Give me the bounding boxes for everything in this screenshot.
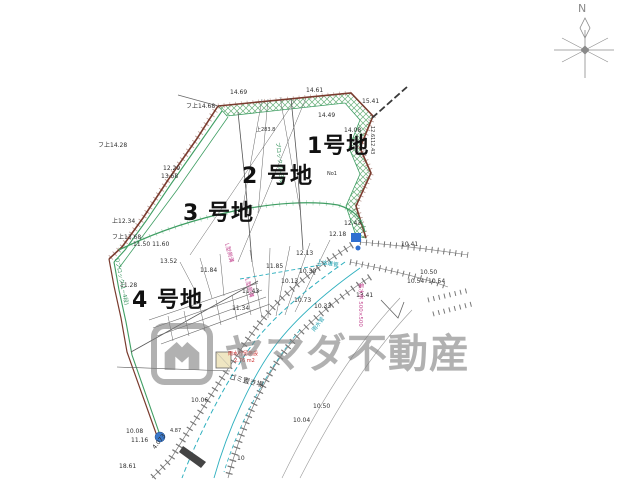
survey-annotation: 13.52 [160, 259, 177, 265]
survey-annotation: 11.85 [266, 264, 283, 270]
survey-annotation: 14.49 [318, 113, 335, 119]
survey-annotation: 15.41 [362, 99, 379, 105]
survey-annotation: 12.13 [296, 251, 313, 257]
survey-annotation: 10.33 [314, 304, 331, 310]
compass-north-label: N [578, 2, 586, 15]
survey-annotation: 10 [237, 456, 245, 462]
survey-annotation: 上283.8 [256, 128, 275, 133]
small-valve-marker [356, 246, 361, 251]
catch-basin-marker [351, 233, 361, 242]
retaining-wall-wedge [179, 446, 206, 468]
lot-label: 3 号地 [183, 203, 254, 225]
survey-annotation: 10.04 [293, 418, 310, 424]
survey-annotation: 11.34 [232, 306, 249, 312]
survey-annotation: 13.68 [161, 174, 178, 180]
compass-rose [554, 18, 614, 78]
survey-annotation: 10.50 [313, 404, 330, 410]
survey-annotation: 10.06 [191, 398, 208, 404]
survey-annotation: 10.41 [401, 242, 418, 248]
survey-annotation: フ上14.28 [98, 143, 127, 149]
survey-annotation: 上12.34 [112, 219, 135, 225]
survey-annotation: 集水桝 500×500 [357, 283, 363, 327]
lot-label: 2 号地 [242, 166, 313, 188]
survey-annotation: 12.61 [369, 126, 374, 140]
survey-map-drawing [0, 0, 617, 480]
survey-annotation: 10.13 [281, 279, 298, 285]
survey-annotation: 14.61 [306, 88, 323, 94]
survey-annotation: 2.76 m2 [234, 359, 255, 364]
survey-annotation: 11.16 [131, 438, 148, 444]
survey-annotation: 10.08 [126, 429, 143, 435]
survey-annotation: 10.54 [407, 279, 424, 285]
survey-annotation: フ上14.68 [186, 104, 215, 110]
survey-annotation: 12.18 [329, 232, 346, 238]
plot-map-screenshot: N 14.6914.6115.4114.4914.08フ上14.68フ上14.2… [0, 0, 617, 480]
survey-annotation: 14.69 [230, 90, 247, 96]
survey-annotation: 18.61 [119, 464, 136, 470]
survey-annotation: 12.29 [163, 166, 180, 172]
survey-annotation: 10.54 [428, 279, 445, 285]
survey-annotation: No1 [327, 172, 337, 177]
lot-label: 4 号地 [132, 290, 203, 312]
survey-annotation: 12.43 [369, 140, 374, 154]
survey-annotation: 11.50 11.60 [133, 242, 169, 248]
survey-annotation: 4.87 [170, 429, 181, 434]
lot-division-lines [117, 98, 303, 371]
survey-annotation: 10.50 [420, 270, 437, 276]
green-survey-lines [114, 111, 365, 438]
survey-annotation: 雨水貯留施設 [228, 352, 258, 357]
lot-label: 1号地 [307, 136, 369, 158]
survey-annotation: 10.30 [299, 269, 316, 275]
survey-annotation: 11.84 [200, 268, 217, 274]
survey-annotation: 10.73 [294, 298, 311, 304]
survey-annotation: 12.43 [344, 221, 361, 227]
